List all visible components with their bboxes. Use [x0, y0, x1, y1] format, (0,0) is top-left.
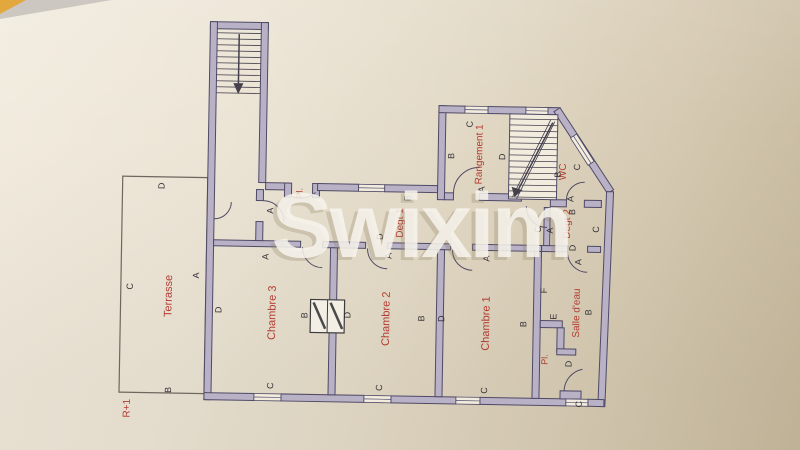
wall-marker-b: B	[163, 387, 173, 393]
room-label-salle-d-eau: Salle d'eau	[571, 288, 583, 337]
room-label-chambre-3: Chambre 3	[266, 285, 279, 340]
wall-marker-c: C	[574, 400, 584, 407]
room-label-chambre-2: Chambre 2	[380, 291, 393, 346]
room-label-pl-: Pl.	[540, 354, 550, 365]
wall-marker-b: B	[416, 315, 426, 321]
wall-marker-b: B	[583, 309, 593, 315]
wall-marker-b: B	[518, 321, 528, 327]
wall-marker-c: C	[479, 387, 489, 394]
room-label-terrasse: Terrasse	[162, 275, 175, 317]
wall-marker-d: D	[497, 153, 507, 160]
wall-marker-c: C	[374, 384, 384, 391]
wall-marker-c: C	[265, 382, 275, 389]
wall-marker-b: B	[299, 312, 309, 318]
chimney-symbol	[310, 299, 345, 333]
wall-marker-d: D	[342, 311, 352, 318]
wall-marker-d: D	[157, 182, 167, 189]
wall-marker-a: A	[573, 259, 583, 265]
wall-marker-c: C	[591, 226, 601, 233]
swixim-watermark: Swixim Swixim	[267, 175, 570, 280]
watermark-text: Swixim	[271, 175, 570, 277]
wall-marker-c: C	[572, 163, 582, 170]
floor-plan-drawing: DCBAABADCBDDACBDACBCBADBCABCACDAFEDBC Te…	[0, 0, 800, 450]
room-label-r-1: R+1	[122, 398, 133, 417]
wall-marker-d: D	[436, 315, 446, 322]
wall-marker-d: D	[213, 306, 223, 313]
wall-marker-e: E	[548, 314, 558, 320]
stair-down-arrow-icon	[233, 83, 243, 94]
wall-marker-d: D	[564, 360, 574, 367]
staircase-shaft	[216, 33, 261, 95]
room-label-chambre-1: Chambre 1	[480, 296, 493, 351]
wall-marker-f: F	[539, 287, 549, 293]
wall-marker-a: A	[191, 272, 201, 278]
wall-marker-c: C	[465, 120, 475, 127]
wall-marker-b: B	[446, 153, 456, 159]
wall-marker-c: C	[125, 282, 135, 289]
photo-of-floor-plan: DCBAABADCBDDACBDACBCBADBCABCACDAFEDBC Te…	[0, 0, 800, 450]
